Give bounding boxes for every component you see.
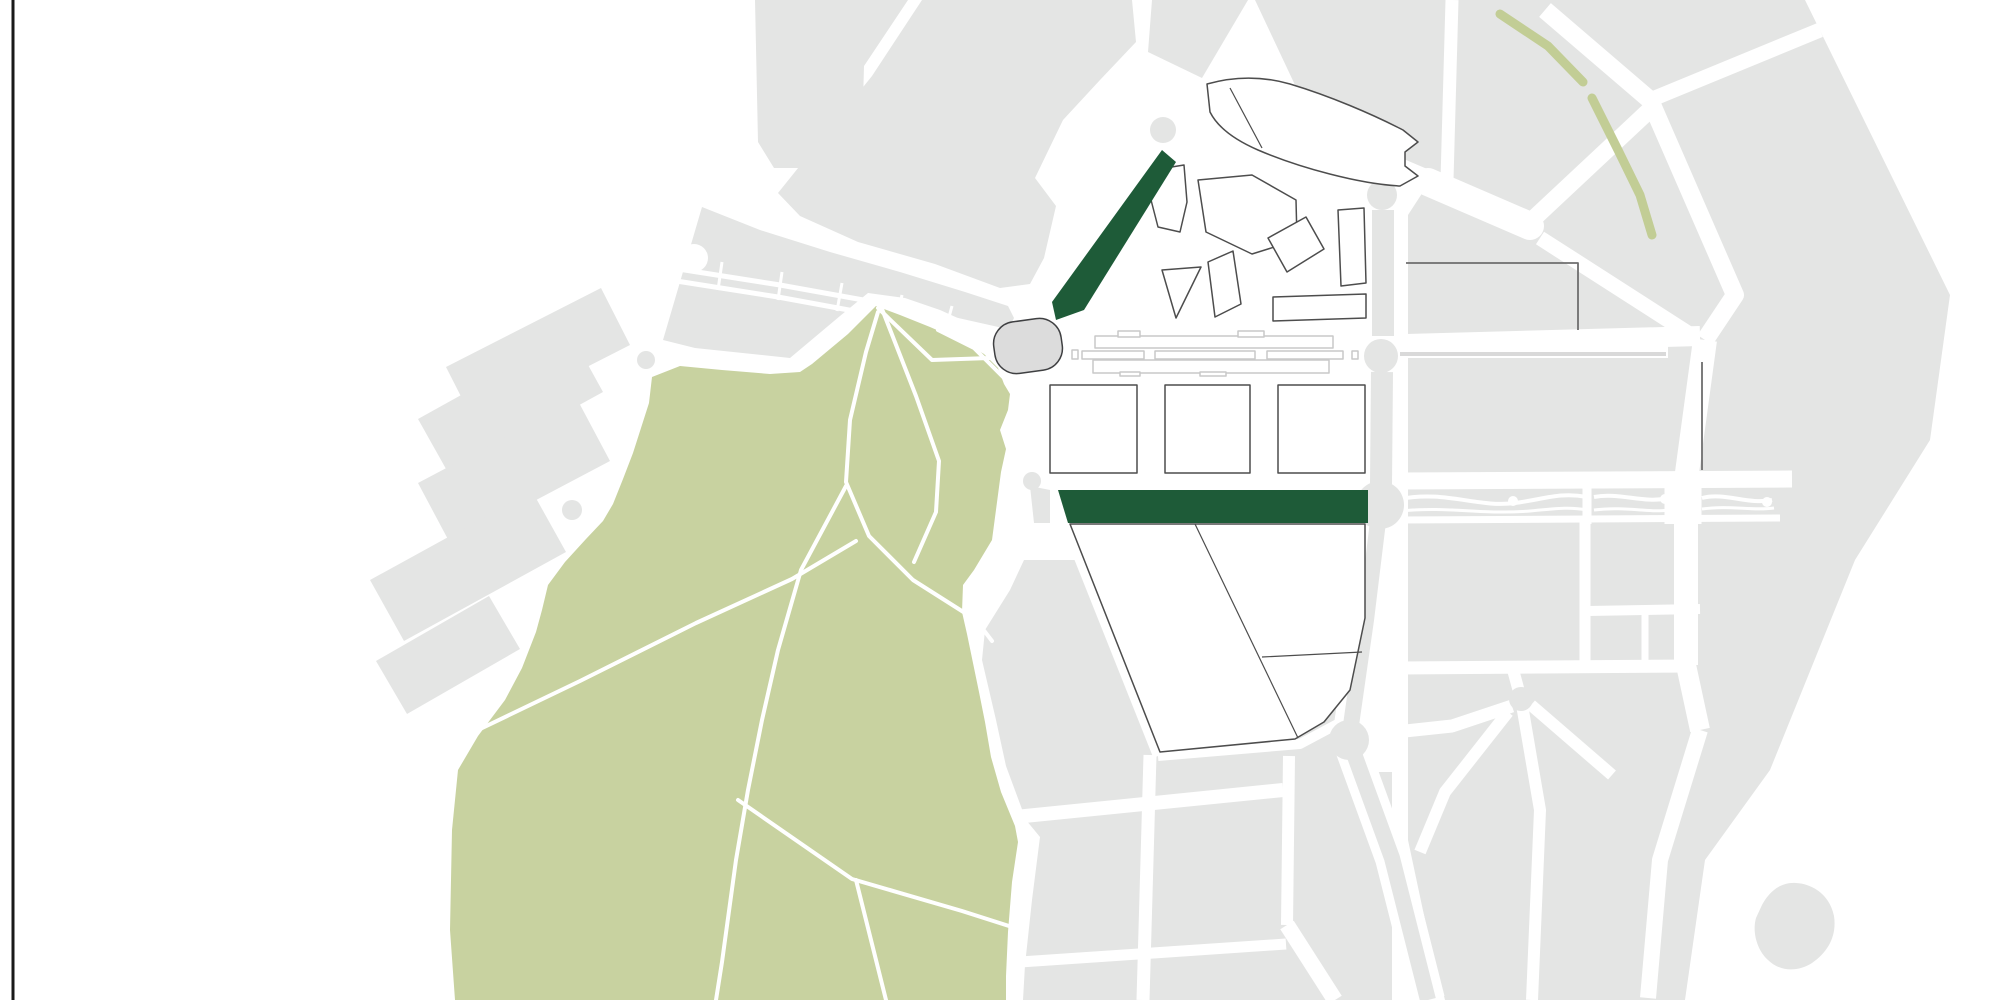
junction-circle-ladder-mid (562, 500, 582, 520)
station-dash-right (1352, 351, 1358, 359)
parcel-tall-right (1338, 208, 1366, 286)
railway-crossing-blob (680, 244, 708, 272)
station-dash-left (1072, 350, 1078, 359)
highlight-parcel-strip (1052, 150, 1176, 320)
block-north-corner (1148, 0, 1248, 78)
station-tab-3 (1120, 372, 1140, 376)
road-east-main (1370, 336, 1700, 345)
station-platform-bottom (1093, 360, 1329, 373)
station-platform-top (1095, 336, 1333, 348)
map-canvas (0, 0, 2000, 1000)
river-dot-2 (1660, 494, 1670, 504)
river-dot-3 (1762, 497, 1772, 507)
parcel-triangle (1162, 267, 1201, 318)
river-dot-1 (1508, 496, 1518, 506)
road-ne-vertical (1447, 0, 1452, 180)
parcel-square-2 (1165, 385, 1250, 473)
parcel-square-1 (1050, 385, 1137, 473)
station-tab-2 (1238, 331, 1264, 337)
station-tab-1 (1118, 331, 1140, 337)
junction-circle-ladder-top (637, 351, 655, 369)
parcel-wide (1273, 294, 1366, 321)
block-kidney-southeast (1755, 883, 1835, 969)
junction-circle-east-2 (1364, 339, 1398, 373)
junction-circle-southeast (1509, 687, 1533, 711)
junction-circle-strip-top (1150, 117, 1176, 143)
highlight-parcel-bar (1058, 490, 1368, 523)
road-south-vert-2 (1287, 756, 1289, 925)
junction-circle-south (1329, 720, 1369, 760)
road-gray-mid-segment (1381, 372, 1382, 484)
station-track-3 (1267, 351, 1343, 359)
junction-dot-park-east (1023, 472, 1041, 490)
station-track-1 (1082, 351, 1144, 359)
road-east-vert-2 (1686, 665, 1700, 730)
station-tab-4 (1200, 372, 1226, 376)
road-east-2 (1398, 479, 1792, 481)
station-track-2 (1155, 351, 1255, 359)
parcel-rotated-2 (1208, 251, 1241, 317)
road-south-vert-1 (1143, 755, 1150, 1000)
parcel-square-3 (1278, 385, 1365, 473)
road-east-horiz-2 (1588, 609, 1700, 611)
road-east-horiz-3 (1398, 666, 1695, 668)
block-south-wedge (1030, 486, 1050, 523)
site-plan-map (0, 0, 2000, 1000)
